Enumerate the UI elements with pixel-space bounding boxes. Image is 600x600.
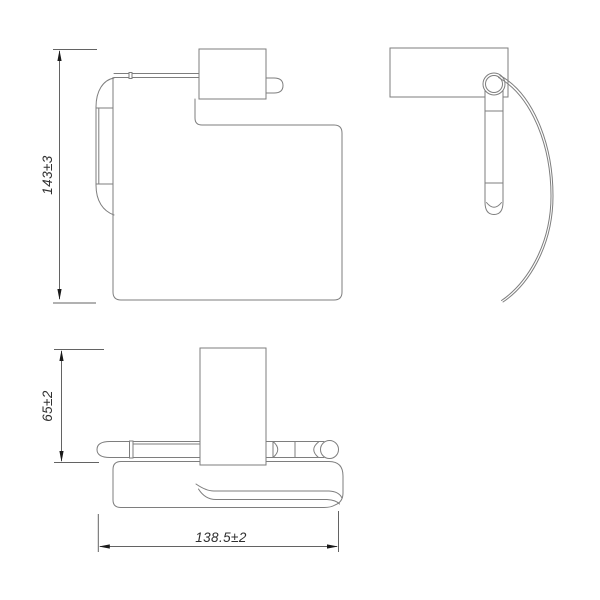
top-rail [114,74,199,78]
wall-plate-top [200,348,266,465]
arm-top-left-cap [97,442,131,458]
mount-bracket [199,49,266,99]
width-dimension-label: 138.5±2 [195,530,247,545]
top-rail-cap [129,73,132,79]
depth-arrow-down [59,451,63,462]
pivot-end-top [321,441,339,459]
depth-arrow-up [59,350,63,361]
technical-drawing: 143±3 65±2 [0,0,600,600]
front-view [96,49,342,300]
height-arrow-up [57,50,61,61]
cover-top-outline [113,462,343,508]
arm-top-divider [130,441,134,458]
height-dimension [53,50,97,304]
height-dimension-label: 143±3 [40,155,55,195]
cover-profile-inner [499,78,552,301]
side-view [390,48,553,302]
top-view [97,348,343,508]
roll-arm-edges [96,108,113,184]
arm-top-lines-left [133,442,200,458]
height-arrow-down [57,289,61,300]
drawing-canvas: 143±3 65±2 [0,0,600,600]
depth-dimension [54,350,104,463]
cover-profile-outer [500,76,553,303]
mount-knob [266,78,283,93]
arm-side [485,80,503,215]
depth-dimension-label: 65±2 [40,390,55,422]
cover-top-lip-upper [196,484,342,498]
cover-outline [113,78,342,301]
pivot-parts-top [273,442,319,458]
width-arrow-right [327,544,338,548]
width-arrow-left [99,544,110,548]
